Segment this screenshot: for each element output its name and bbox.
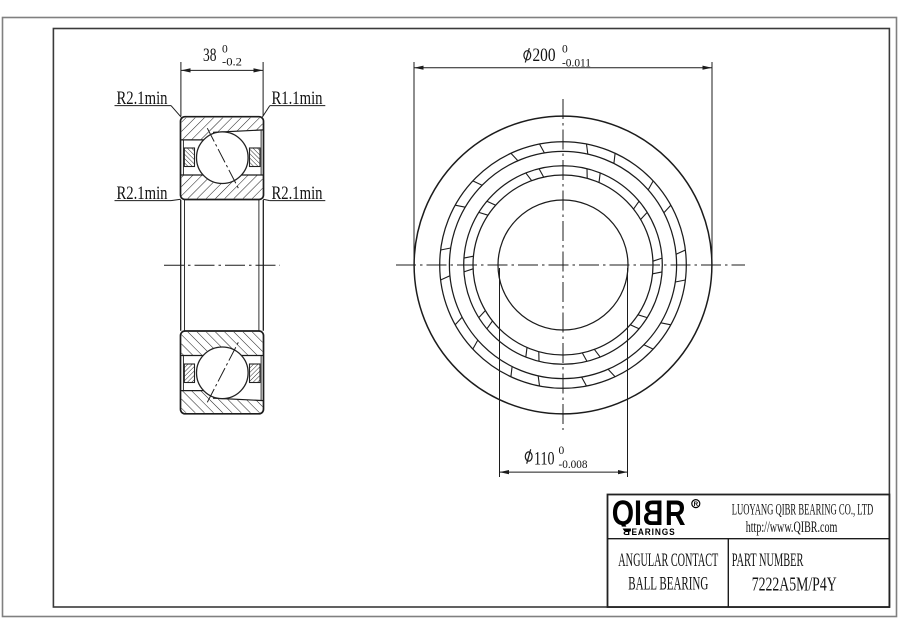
svg-text:-0.008: -0.008 <box>559 459 588 471</box>
svg-text:BALL BEARING: BALL BEARING <box>628 573 708 594</box>
svg-text:-0.011: -0.011 <box>562 57 591 69</box>
svg-text:R: R <box>694 501 699 508</box>
svg-text:38: 38 <box>203 45 217 66</box>
svg-text:ANGULAR CONTACT: ANGULAR CONTACT <box>618 550 718 571</box>
svg-text:PART NUMBER: PART NUMBER <box>732 550 804 571</box>
svg-text:0: 0 <box>222 44 228 56</box>
svg-text:200: 200 <box>533 45 556 66</box>
svg-text:B: B <box>623 527 630 538</box>
svg-text:0: 0 <box>559 445 565 457</box>
svg-text:-0.2: -0.2 <box>222 56 242 68</box>
svg-text:http://www.QIBR.com: http://www.QIBR.com <box>746 519 838 536</box>
svg-text:7222A5M/P4Y: 7222A5M/P4Y <box>752 574 837 596</box>
svg-text:110: 110 <box>534 449 555 470</box>
svg-text:LUOYANG QIBR BEARING CO., LTD: LUOYANG QIBR BEARING CO., LTD <box>732 502 874 519</box>
svg-text:0: 0 <box>562 43 568 55</box>
svg-text:EARINGS: EARINGS <box>632 527 676 538</box>
